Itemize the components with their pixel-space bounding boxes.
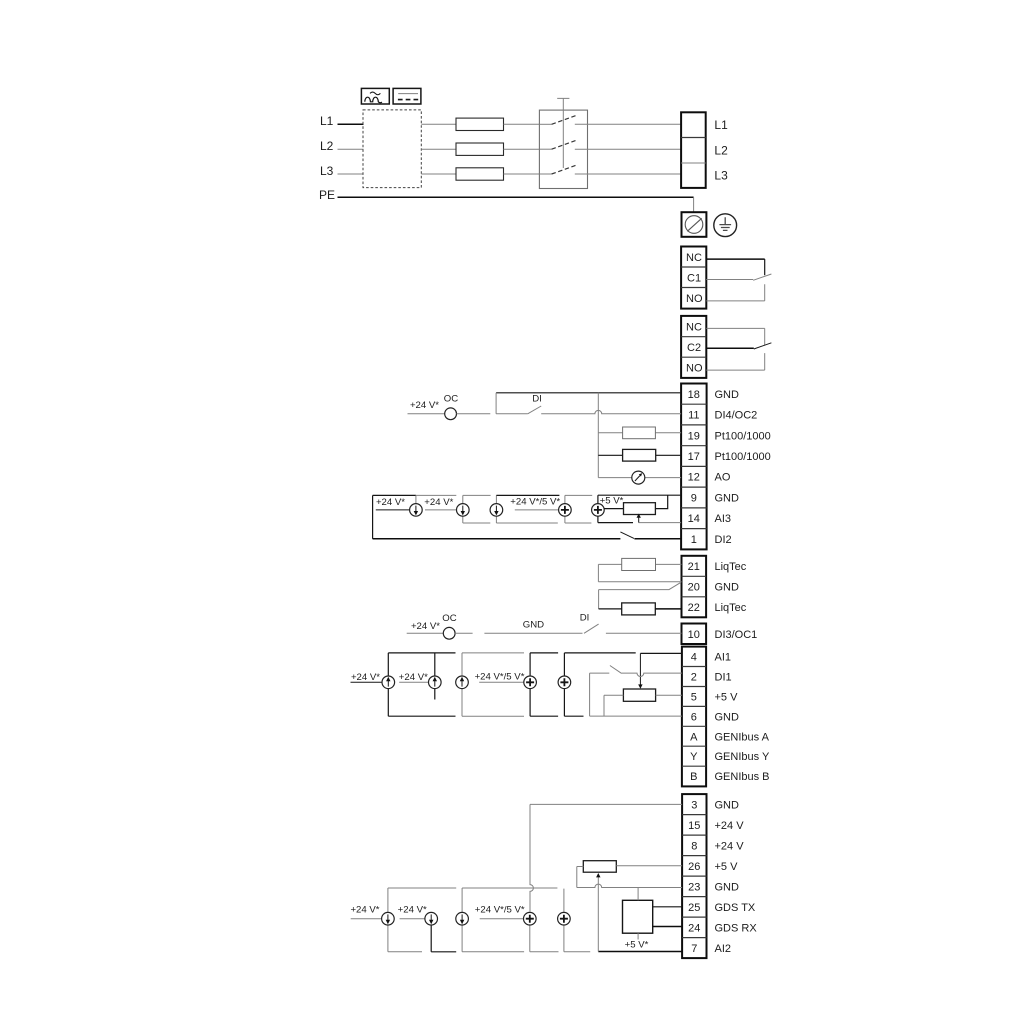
svg-text:15: 15 [688, 820, 700, 832]
svg-text:LiqTec: LiqTec [715, 602, 747, 614]
svg-text:GND: GND [715, 711, 740, 723]
svg-text:18: 18 [688, 389, 700, 401]
svg-text:+24 V*: +24 V* [376, 497, 405, 508]
svg-text:L2: L2 [320, 139, 334, 153]
svg-text:LiqTec: LiqTec [715, 561, 747, 573]
svg-text:+24 V*: +24 V* [410, 400, 439, 411]
svg-text:22: 22 [688, 602, 700, 614]
svg-text:+24 V*/5 V*: +24 V*/5 V* [475, 904, 525, 915]
svg-text:Y: Y [690, 751, 698, 763]
svg-text:+24 V*/5 V*: +24 V*/5 V* [510, 496, 560, 507]
svg-text:NO: NO [686, 363, 703, 375]
svg-text:GND: GND [523, 620, 544, 631]
svg-text:GND: GND [715, 881, 740, 893]
svg-text:11: 11 [688, 410, 699, 422]
svg-text:+24 V*: +24 V* [411, 621, 440, 632]
svg-text:+5 V*: +5 V* [625, 940, 649, 951]
svg-text:DI1: DI1 [715, 672, 732, 684]
svg-text:2: 2 [691, 672, 697, 684]
svg-text:1: 1 [691, 534, 697, 546]
svg-text:+24 V*: +24 V* [399, 672, 428, 683]
svg-text:GENIbus A: GENIbus A [715, 731, 770, 743]
svg-text:GND: GND [715, 582, 740, 594]
svg-text:4: 4 [691, 652, 697, 664]
svg-text:GND: GND [715, 799, 740, 811]
svg-text:Pt100/1000: Pt100/1000 [715, 451, 771, 463]
svg-text:L1: L1 [320, 114, 334, 128]
svg-text:PE: PE [319, 188, 335, 202]
svg-text:6: 6 [691, 711, 697, 723]
svg-text:DI3/OC1: DI3/OC1 [715, 629, 758, 641]
svg-text:21: 21 [688, 561, 700, 573]
svg-text:+5 V: +5 V [715, 691, 739, 703]
svg-text:+24 V*: +24 V* [398, 904, 427, 915]
svg-text:7: 7 [691, 943, 697, 955]
svg-text:20: 20 [688, 582, 700, 594]
svg-text:8: 8 [691, 840, 697, 852]
svg-text:+24 V*: +24 V* [351, 672, 380, 683]
svg-text:5: 5 [691, 691, 697, 703]
svg-text:AI2: AI2 [715, 943, 732, 955]
svg-text:+24 V: +24 V [715, 820, 745, 832]
svg-text:3: 3 [691, 799, 697, 811]
svg-text:DI: DI [580, 612, 590, 623]
svg-text:GDS TX: GDS TX [715, 902, 756, 914]
svg-text:C2: C2 [687, 342, 701, 354]
svg-text:B: B [690, 771, 697, 783]
svg-text:+5 V: +5 V [715, 861, 739, 873]
svg-text:GENIbus Y: GENIbus Y [715, 751, 770, 763]
svg-text:OC: OC [442, 613, 456, 624]
svg-text:19: 19 [688, 430, 700, 442]
svg-text:+5 V*: +5 V* [600, 495, 624, 506]
svg-text:GENIbus B: GENIbus B [715, 771, 770, 783]
svg-text:GND: GND [715, 493, 740, 505]
svg-text:Pt100/1000: Pt100/1000 [715, 430, 771, 442]
svg-text:10: 10 [688, 629, 700, 641]
svg-text:GND: GND [715, 389, 740, 401]
svg-text:25: 25 [688, 902, 700, 914]
svg-text:AI1: AI1 [715, 652, 732, 664]
svg-text:A: A [690, 731, 698, 743]
svg-text:26: 26 [688, 861, 700, 873]
svg-text:23: 23 [688, 881, 700, 893]
svg-text:L3: L3 [714, 169, 728, 183]
svg-text:AI3: AI3 [715, 513, 732, 525]
svg-text:AO: AO [715, 472, 731, 484]
svg-text:24: 24 [688, 922, 700, 934]
svg-text:DI4/OC2: DI4/OC2 [715, 410, 758, 422]
svg-text:OC: OC [444, 394, 458, 405]
svg-text:C1: C1 [687, 272, 701, 284]
svg-text:DI2: DI2 [715, 534, 732, 546]
svg-text:+24 V*: +24 V* [424, 497, 453, 508]
svg-text:L1: L1 [714, 118, 728, 132]
svg-text:L3: L3 [320, 164, 334, 178]
svg-text:L2: L2 [714, 143, 728, 157]
svg-text:+24 V: +24 V [715, 840, 745, 852]
svg-text:9: 9 [691, 493, 697, 505]
svg-text:+24 V*: +24 V* [350, 904, 379, 915]
svg-text:+24 V*/5 V*: +24 V*/5 V* [475, 672, 525, 683]
svg-text:NC: NC [686, 321, 702, 333]
svg-text:NO: NO [686, 293, 703, 305]
svg-text:12: 12 [688, 472, 700, 484]
svg-text:GDS RX: GDS RX [715, 922, 758, 934]
svg-text:NC: NC [686, 252, 702, 264]
svg-text:14: 14 [688, 513, 700, 525]
svg-text:DI: DI [532, 394, 542, 405]
svg-text:17: 17 [688, 451, 700, 463]
